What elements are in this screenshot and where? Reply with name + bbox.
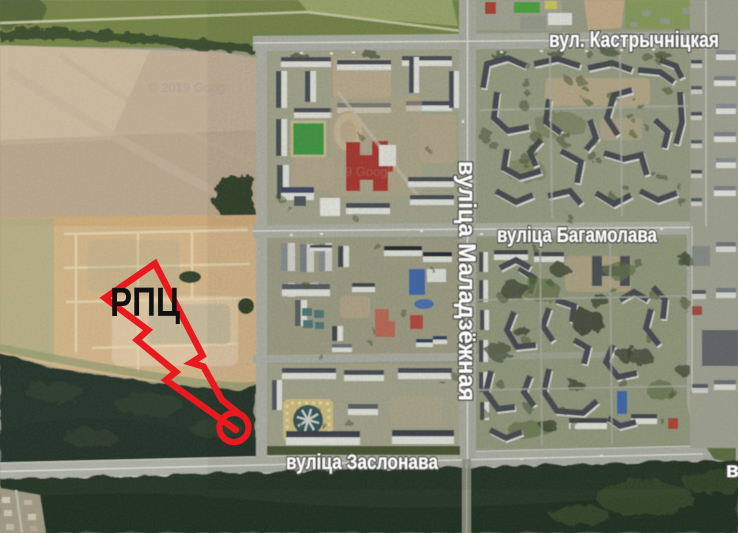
svg-text:вуліца Заслонава: вуліца Заслонава xyxy=(286,451,438,474)
svg-text:в: в xyxy=(726,459,738,482)
svg-text:вуліца Багамолава: вуліца Багамолава xyxy=(497,223,658,247)
svg-text:© 2019 Goog: © 2019 Goog xyxy=(148,80,226,95)
svg-text:© 2019 Google: © 2019 Google xyxy=(310,164,398,179)
svg-text:РПЦ: РПЦ xyxy=(110,279,180,325)
svg-text:вул. Кастрычніцкая: вул. Кастрычніцкая xyxy=(549,27,719,52)
svg-text:вуліца Маладзёжная: вуліца Маладзёжная xyxy=(453,161,480,401)
